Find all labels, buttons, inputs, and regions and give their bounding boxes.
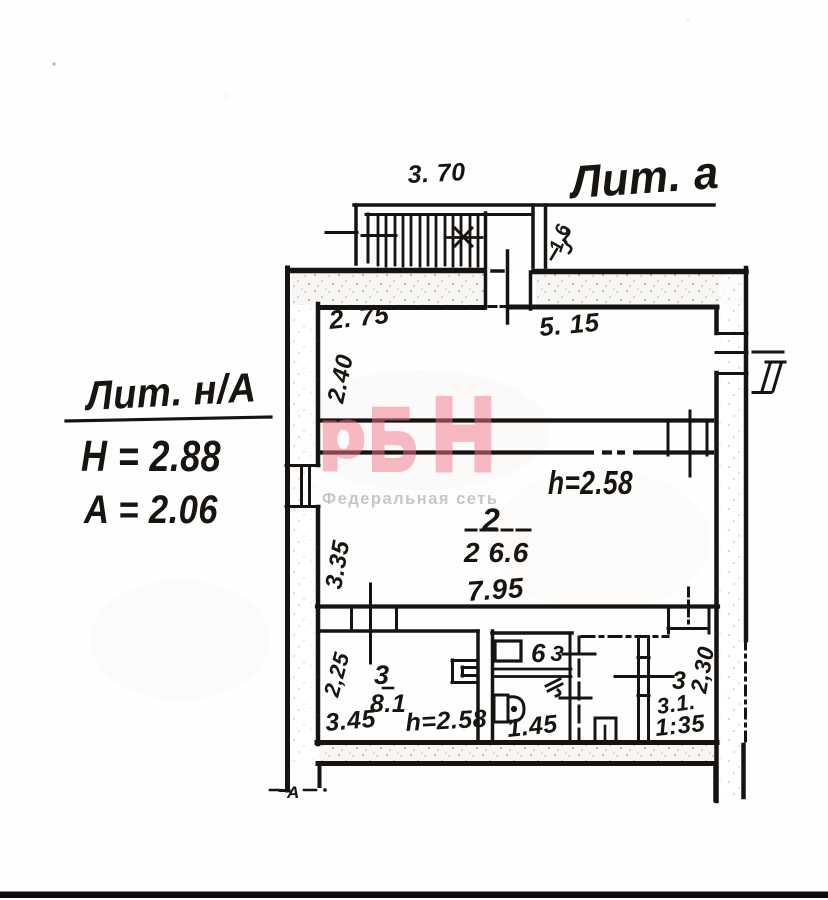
svg-text:2. 75: 2. 75 [326, 299, 390, 335]
svg-text:h=2.58: h=2.58 [548, 464, 633, 501]
svg-text:р: р [320, 398, 365, 470]
svg-text:1:35: 1:35 [654, 710, 707, 742]
svg-text:Б: Б [369, 389, 417, 489]
svg-text:7.95: 7.95 [466, 572, 525, 607]
svg-text:Лum. н/А: Лum. н/А [82, 364, 257, 419]
svg-text:h=2.58: h=2.58 [405, 705, 488, 737]
svg-text:1.45: 1.45 [506, 710, 560, 743]
svg-text:5. 15: 5. 15 [538, 307, 601, 342]
svg-text:Лum. a: Лum. a [566, 146, 720, 208]
svg-text:8.1: 8.1 [370, 690, 406, 718]
svg-text:2 6.6: 2 6.6 [463, 537, 529, 568]
svg-text:Федеральная сеть: Федеральная сеть [322, 490, 497, 508]
svg-text:6: 6 [531, 638, 546, 668]
svg-text:A = 2.06: A = 2.06 [83, 488, 218, 532]
svg-text:Н: Н [432, 377, 495, 493]
svg-text:3: 3 [374, 660, 390, 690]
svg-text:3. 70: 3. 70 [407, 158, 466, 189]
svg-text:H = 2.88: H = 2.88 [81, 432, 221, 481]
svg-text:3.45: 3.45 [324, 705, 377, 737]
svg-text:A: A [286, 783, 300, 802]
